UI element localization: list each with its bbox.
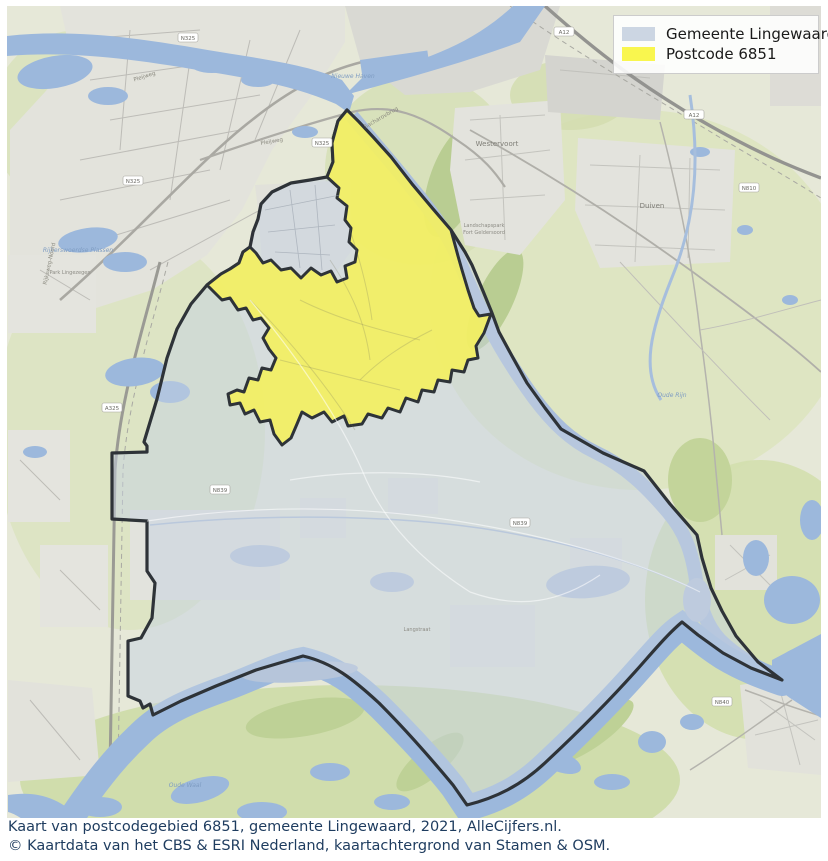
legend-label-postcode: Postcode 6851 xyxy=(666,45,777,63)
svg-text:N840: N840 xyxy=(715,700,730,706)
legend-label-municipality: Gemeente Lingewaard xyxy=(666,25,828,43)
svg-text:A12: A12 xyxy=(689,113,700,119)
road-shield: A12 xyxy=(684,110,704,119)
map-label: Park Lingezegen xyxy=(49,270,90,276)
map-label: Fort Geldersoord xyxy=(463,230,505,236)
road-shield: N325 xyxy=(178,33,198,42)
road-shield: N325 xyxy=(312,138,332,147)
svg-text:N325: N325 xyxy=(315,141,330,147)
map-label: Nieuwe Haven xyxy=(331,73,375,80)
road-shield: A325 xyxy=(102,403,122,412)
legend-row-municipality: Gemeente Lingewaard xyxy=(622,25,808,43)
svg-text:N325: N325 xyxy=(181,36,196,42)
road-shield: N810 xyxy=(739,183,759,192)
map-label: Langstraat xyxy=(404,627,431,633)
road-shield: N839 xyxy=(210,485,230,494)
map-label: Westervoort xyxy=(476,140,519,148)
map-legend: Gemeente Lingewaard Postcode 6851 xyxy=(613,15,819,74)
svg-text:N810: N810 xyxy=(742,186,757,192)
svg-text:N839: N839 xyxy=(513,521,528,527)
map-label: Oude Rijn xyxy=(657,392,686,399)
map-canvas: N325N325N325A325A12A12N810N839N839N840 W… xyxy=(7,6,821,818)
caption-line-1: Kaart van postcodegebied 6851, gemeente … xyxy=(8,818,820,837)
page: { "legend": { "items": [ { "label": "Gem… xyxy=(0,0,828,861)
svg-text:A12: A12 xyxy=(559,30,570,36)
map-label: Landschapspark xyxy=(464,223,505,229)
postcode-swatch xyxy=(622,47,655,61)
legend-row-postcode: Postcode 6851 xyxy=(622,45,808,63)
road-shield: N325 xyxy=(123,176,143,185)
svg-text:N325: N325 xyxy=(126,179,141,185)
caption-line-2: © Kaartdata van het CBS & ESRI Nederland… xyxy=(8,837,820,856)
svg-text:A325: A325 xyxy=(105,406,120,412)
map-label: Oude Waal xyxy=(169,782,202,789)
map-svg: N325N325N325A325A12A12N810N839N839N840 W… xyxy=(7,6,821,818)
municipality-swatch xyxy=(622,27,655,41)
road-shield: N839 xyxy=(510,518,530,527)
road-shield: A12 xyxy=(554,27,574,36)
svg-text:N839: N839 xyxy=(213,488,228,494)
caption: Kaart van postcodegebied 6851, gemeente … xyxy=(8,818,820,856)
map-label: Duiven xyxy=(640,202,665,210)
road-shield: N840 xyxy=(712,697,732,706)
